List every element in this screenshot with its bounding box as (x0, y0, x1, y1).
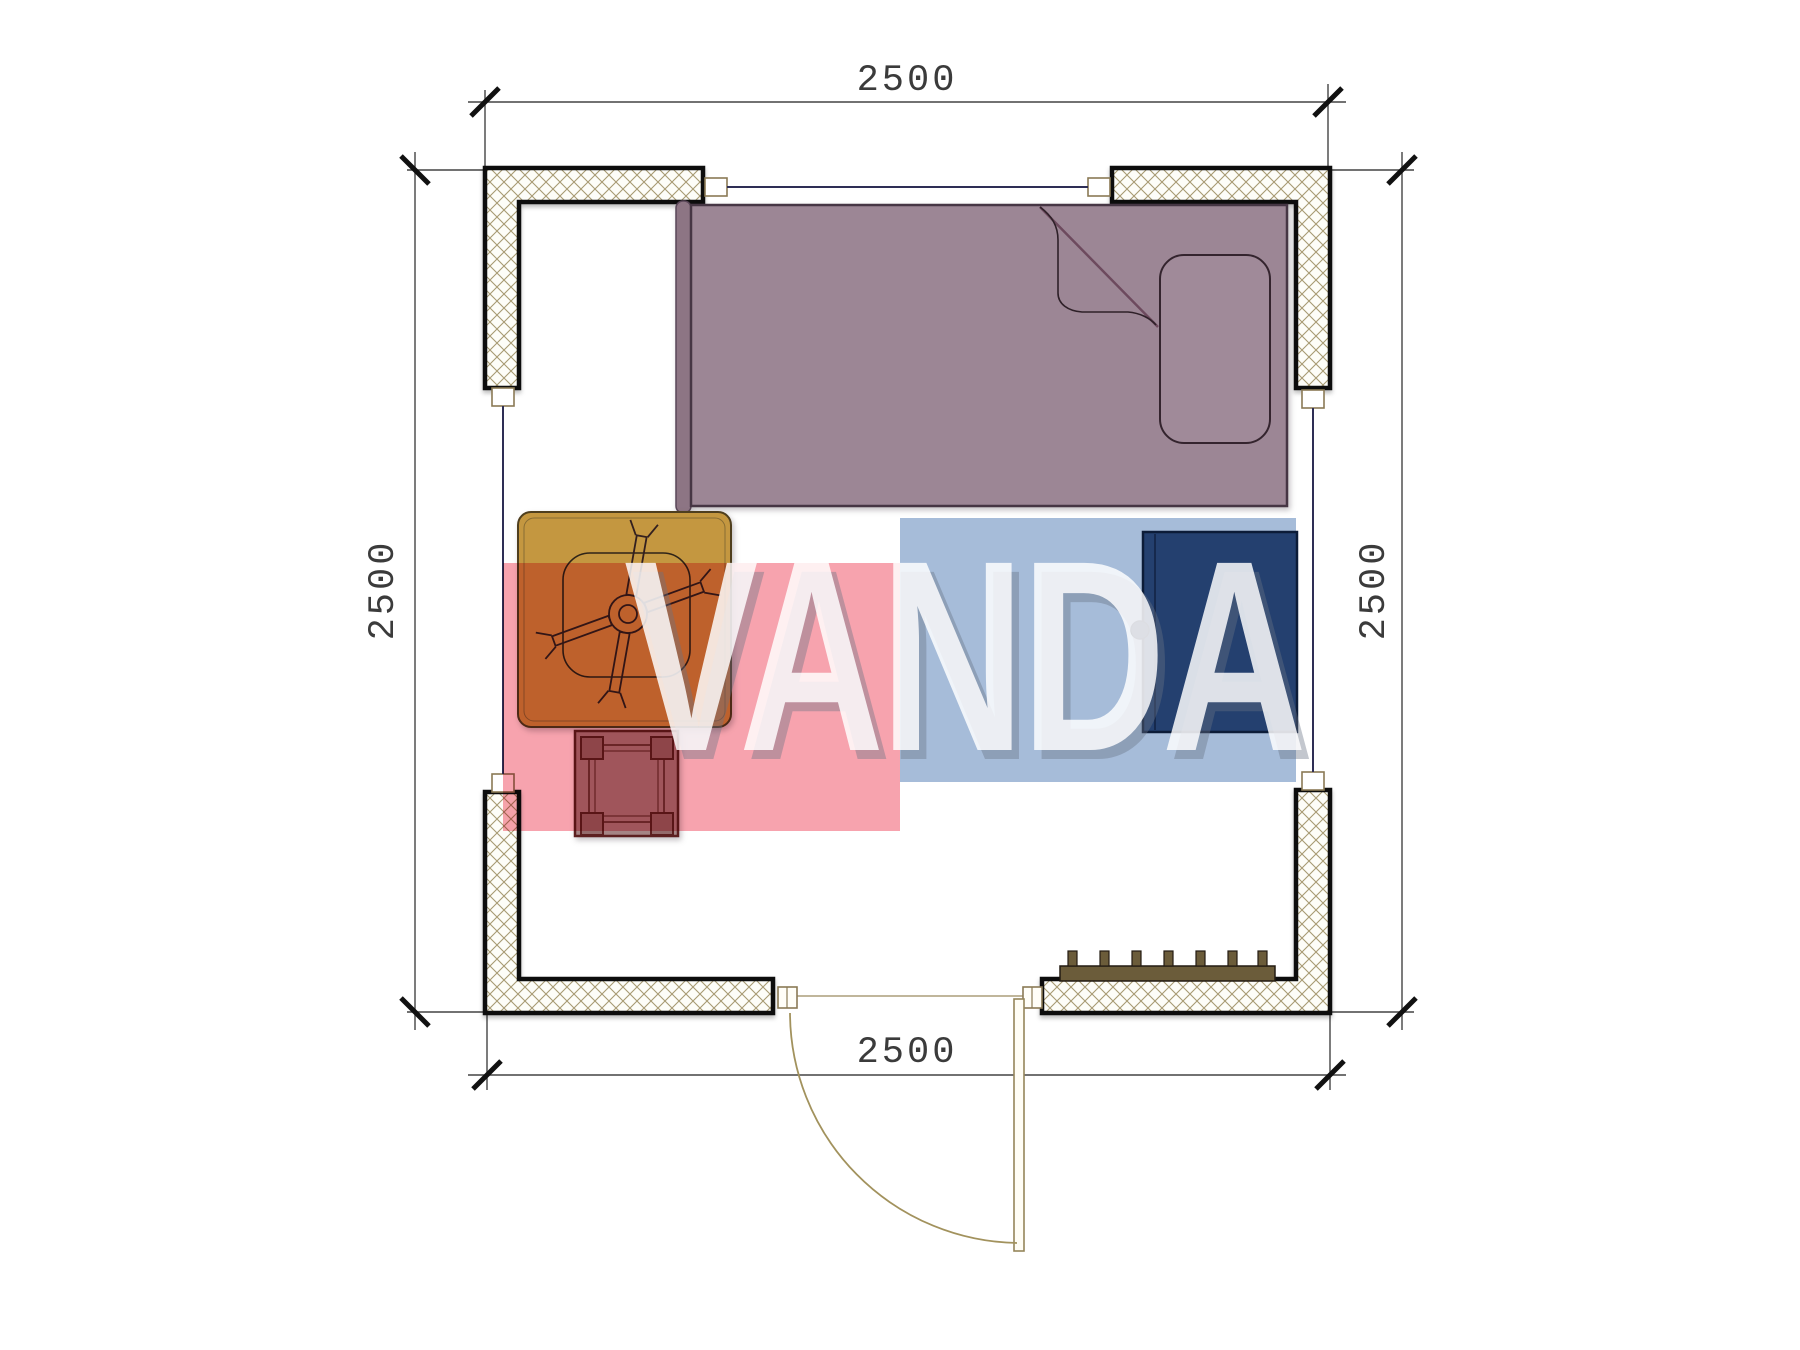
watermark-text: VANDA (624, 540, 1216, 774)
floor-plan-canvas: 2500 2500 2500 2500 (0, 0, 1800, 1350)
